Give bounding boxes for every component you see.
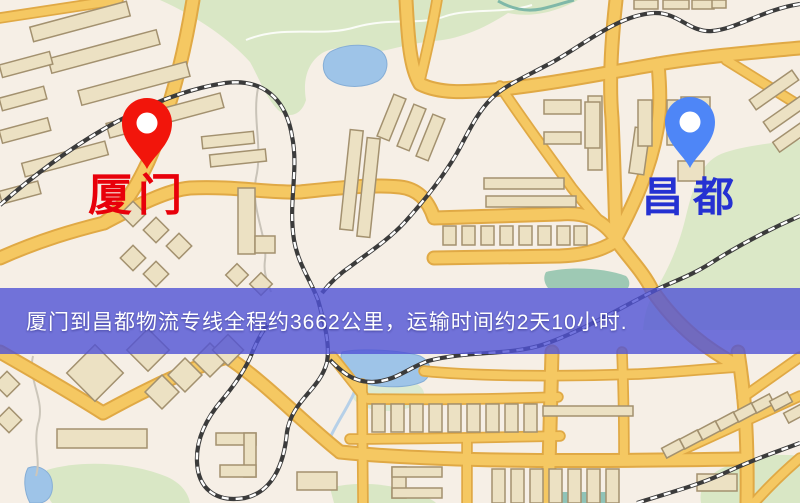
destination-city-label: 昌都	[642, 177, 744, 218]
route-info-banner: 厦门到昌都物流专线全程约3662公里，运输时间约2天10小时.	[0, 288, 800, 354]
origin-pin-icon	[122, 98, 172, 169]
origin-city-label: 厦门	[88, 174, 188, 218]
route-info-text: 厦门到昌都物流专线全程约3662公里，运输时间约2天10小时.	[0, 306, 628, 336]
destination-pin-icon	[665, 97, 715, 168]
logistics-route-map-image: 厦门 昌都 厦门到昌都物流专线全程约3662公里，运输时间约2天10小时.	[0, 0, 800, 503]
map-canvas	[0, 0, 800, 503]
